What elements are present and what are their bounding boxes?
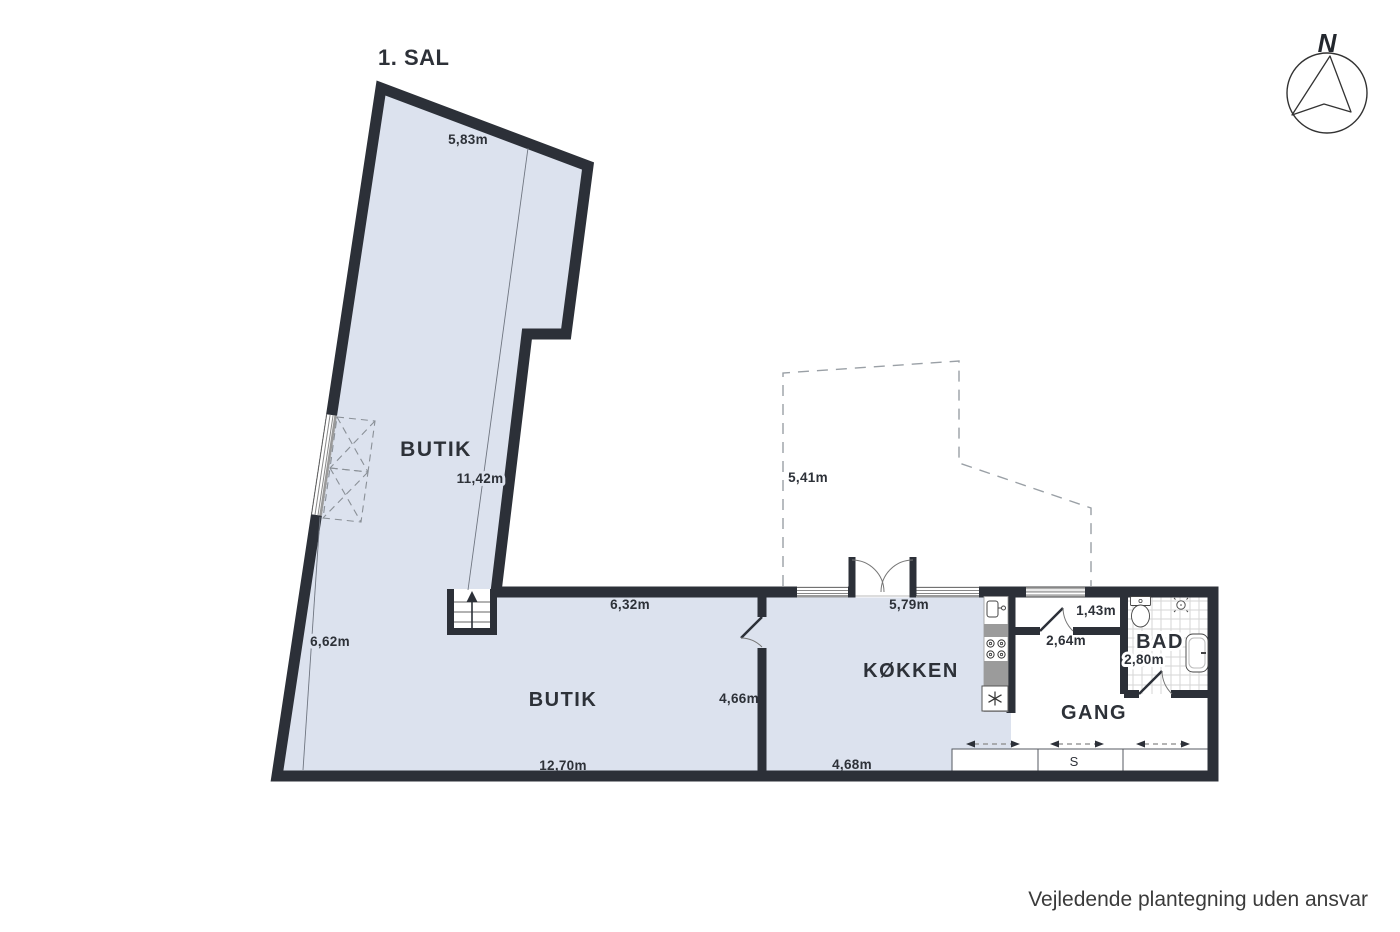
door-leaf <box>849 557 856 596</box>
stairs <box>449 589 494 633</box>
dim-label-5-41: 5,41m <box>788 470 828 485</box>
compass-north-label: N <box>1318 28 1338 58</box>
compass-north-arrow-icon <box>1292 56 1351 115</box>
window-shop-north <box>797 587 848 598</box>
dashed-annex-outline <box>783 361 1091 586</box>
room-label-bathroom: BAD <box>1136 631 1184 653</box>
kitchen-counter <box>984 624 1008 637</box>
dim-label-11-42: 11,42m <box>457 471 504 486</box>
room-label-hallway: GANG <box>1061 702 1127 724</box>
compass-rose: N <box>1287 28 1367 133</box>
kitchen-unit <box>982 597 1008 712</box>
dim-label-2-80: 2,80m <box>1124 652 1164 667</box>
kitchen-counter <box>984 661 1008 686</box>
room-label-kitchen: KØKKEN <box>863 660 959 682</box>
toilet-icon <box>1131 597 1151 628</box>
refrigerator-icon <box>982 686 1008 711</box>
dim-label-2-64: 2,64m <box>1046 633 1086 648</box>
dim-label-6-32: 6,32m <box>610 597 650 612</box>
dim-label-6-62: 6,62m <box>310 634 350 649</box>
bathroom-sink-icon <box>1186 634 1208 672</box>
disclaimer-text: Vejledende plantegning uden ansvar <box>1028 888 1368 911</box>
dim-label-4-68: 4,68m <box>832 757 872 772</box>
door-leaf <box>910 557 917 596</box>
dim-label-1-43: 1,43m <box>1076 603 1116 618</box>
room-label-shop-upper: BUTIK <box>400 438 472 461</box>
floor-title: 1. SAL <box>378 45 449 70</box>
floor-plan-svg: 1. SAL BUTIK BUTIK KØKKEN GANG BAD S 5,8… <box>0 0 1400 932</box>
dim-label-5-83: 5,83m <box>448 132 488 147</box>
window-kitchen-north <box>916 587 979 598</box>
dim-label-4-66: 4,66m <box>719 691 759 706</box>
dim-label-12-70: 12,70m <box>539 758 587 773</box>
dim-label-5-79: 5,79m <box>889 597 929 612</box>
window-entry-north <box>1026 587 1085 597</box>
floor-hallway-bathroom <box>1011 592 1213 776</box>
closet-label: S <box>1070 754 1079 769</box>
french-doors <box>849 557 917 598</box>
room-label-shop-lower: BUTIK <box>529 689 598 711</box>
